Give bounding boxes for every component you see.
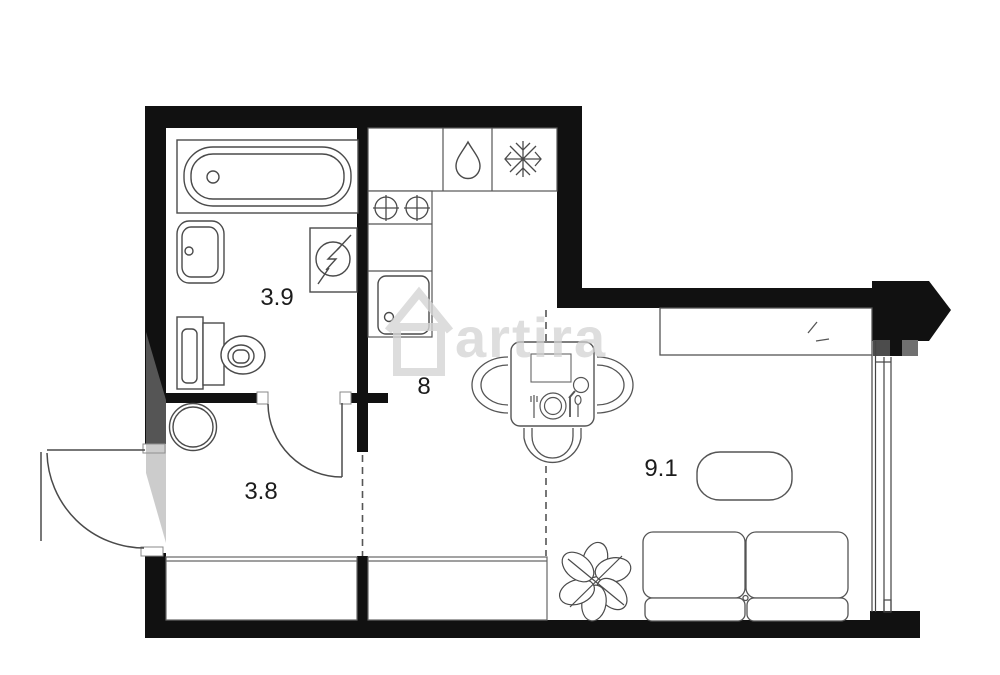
coffee-table xyxy=(697,452,792,500)
wall-bath-south-left xyxy=(166,393,257,403)
wall-kitchen-living-vertical xyxy=(557,106,582,308)
wall-top xyxy=(145,106,582,128)
floor-plan-canvas: 3.9 8 3.8 9.1 artira xyxy=(0,0,1000,675)
pilaster-gray-light xyxy=(902,340,918,356)
window xyxy=(872,341,891,612)
entrance-door-swing-arc xyxy=(47,453,144,548)
wall-pilaster-arrow xyxy=(872,281,951,341)
bathtub xyxy=(177,140,358,213)
room-label-kitchen: 8 xyxy=(417,373,430,400)
window-sill-end xyxy=(884,600,891,612)
low-window-strip xyxy=(166,557,547,620)
room-label-bathroom: 3.9 xyxy=(260,284,293,311)
wardrobe xyxy=(660,308,872,355)
sofa-seat-right xyxy=(746,532,848,598)
washing-machine xyxy=(170,404,217,451)
entrance-jamb-bottom xyxy=(141,547,163,556)
sofa-back-left xyxy=(645,598,745,621)
chair-bottom xyxy=(524,428,581,462)
sofa xyxy=(643,532,848,621)
bath-door-jamb-right xyxy=(340,392,351,404)
entrance-door xyxy=(41,450,145,548)
wall-bottom-right-block xyxy=(870,611,920,638)
wash-basin xyxy=(177,221,224,283)
bath-door-jamb-left xyxy=(257,392,268,404)
bathtub-drain xyxy=(207,171,219,183)
bathroom-door-swing-arc xyxy=(268,404,342,477)
sofa-seat-left xyxy=(643,532,745,598)
wall-window-strip-separator xyxy=(357,556,368,620)
wall-bottom xyxy=(145,620,920,638)
toilet xyxy=(177,317,265,389)
water-heater xyxy=(310,228,357,292)
sofa-back-right xyxy=(747,598,848,621)
watermark-text: artira xyxy=(455,306,607,369)
low-window-right xyxy=(368,557,547,620)
fridge-snowflake-icon xyxy=(505,141,541,177)
wall-living-top xyxy=(573,288,873,308)
wall-pilaster-base xyxy=(890,340,902,356)
room-label-living-room: 9.1 xyxy=(644,455,677,482)
low-window-left xyxy=(166,557,357,620)
toilet-tank-slot xyxy=(182,329,197,383)
basin-drain xyxy=(185,247,193,255)
floor-plan-drawing: 3.9 8 3.8 9.1 artira xyxy=(0,0,1000,675)
wall-bath-south-right xyxy=(351,393,388,403)
room-label-hallway: 3.8 xyxy=(244,478,277,505)
plant xyxy=(556,539,633,623)
bathroom-door xyxy=(268,403,342,477)
